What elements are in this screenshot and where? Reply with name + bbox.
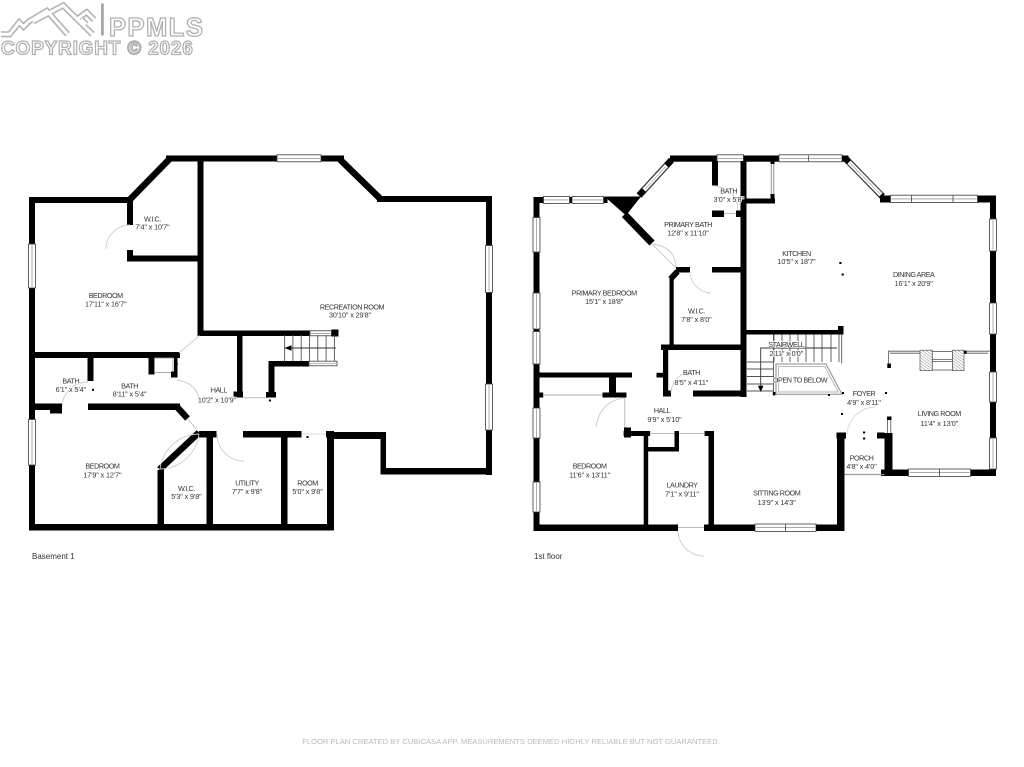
svg-text:STAIRWELL: STAIRWELL xyxy=(768,340,804,349)
svg-text:Basement 1: Basement 1 xyxy=(32,552,75,561)
svg-text:BATH: BATH xyxy=(683,368,700,377)
svg-text:LAUNDRY: LAUNDRY xyxy=(666,481,698,490)
svg-text:FOYER: FOYER xyxy=(853,389,876,398)
svg-text:BATH: BATH xyxy=(62,376,79,385)
svg-text:16'1" x 20'9": 16'1" x 20'9" xyxy=(895,279,934,288)
svg-text:UTILITY: UTILITY xyxy=(235,478,259,487)
svg-text:4'9" x 8'11": 4'9" x 8'11" xyxy=(847,398,881,407)
svg-text:8'5" x 4'11": 8'5" x 4'11" xyxy=(675,378,709,387)
svg-text:BATH: BATH xyxy=(720,186,737,195)
svg-text:17'11" x 16'7": 17'11" x 16'7" xyxy=(85,300,127,309)
svg-text:17'9" x 12'7": 17'9" x 12'7" xyxy=(83,470,122,479)
svg-text:BEDROOM: BEDROOM xyxy=(573,462,607,471)
svg-text:13'9" x 14'3": 13'9" x 14'3" xyxy=(758,498,797,507)
svg-text:HALL: HALL xyxy=(654,406,671,415)
svg-text:SITTING ROOM: SITTING ROOM xyxy=(753,489,801,498)
svg-text:4'8" x 4'0": 4'8" x 4'0" xyxy=(846,462,877,471)
svg-text:11'6" x 13'11": 11'6" x 13'11" xyxy=(569,470,610,479)
svg-text:3'0" x 5'8": 3'0" x 5'8" xyxy=(714,195,745,204)
svg-text:PRIMARY BATH: PRIMARY BATH xyxy=(664,220,712,229)
svg-text:6'1" x 5'4": 6'1" x 5'4" xyxy=(56,385,87,394)
svg-text:OPEN TO BELOW: OPEN TO BELOW xyxy=(773,375,828,384)
svg-text:9'9" x 5'10": 9'9" x 5'10" xyxy=(647,415,682,424)
svg-text:7'7" x 9'8": 7'7" x 9'8" xyxy=(232,487,263,496)
svg-text:2'11" x 0'0": 2'11" x 0'0" xyxy=(769,349,803,358)
svg-text:5'0" x 9'8": 5'0" x 9'8" xyxy=(292,487,323,496)
svg-text:HALL: HALL xyxy=(211,386,228,395)
svg-text:BEDROOM: BEDROOM xyxy=(85,462,119,471)
svg-text:8'11" x 5'4": 8'11" x 5'4" xyxy=(113,390,147,399)
svg-text:1st floor: 1st floor xyxy=(534,552,563,561)
svg-text:LIVING ROOM: LIVING ROOM xyxy=(918,409,961,418)
svg-text:DINING AREA: DINING AREA xyxy=(893,270,935,279)
svg-text:FLOOR PLAN CREATED BY CUBICASA: FLOOR PLAN CREATED BY CUBICASA APP. MEAS… xyxy=(302,737,720,746)
svg-text:5'3" x 9'8": 5'3" x 9'8" xyxy=(171,492,202,501)
svg-text:COPYRIGHT © 2026: COPYRIGHT © 2026 xyxy=(1,39,194,60)
svg-text:7'4" x 10'7": 7'4" x 10'7" xyxy=(135,223,170,232)
svg-text:ROOM: ROOM xyxy=(297,478,318,487)
svg-text:30'10" x 29'8": 30'10" x 29'8" xyxy=(329,311,372,320)
svg-text:15'1" x 18'8": 15'1" x 18'8" xyxy=(585,297,624,306)
svg-text:7'1" x 9'11": 7'1" x 9'11" xyxy=(665,490,699,499)
svg-text:11'4" x 13'0": 11'4" x 13'0" xyxy=(921,419,959,428)
svg-text:12'8" x 11'10": 12'8" x 11'10" xyxy=(667,229,709,238)
svg-text:10'2" x 10'9": 10'2" x 10'9" xyxy=(198,395,237,404)
svg-text:10'5" x 18'7": 10'5" x 18'7" xyxy=(777,257,816,266)
svg-text:7'8" x 8'0": 7'8" x 8'0" xyxy=(681,315,712,324)
